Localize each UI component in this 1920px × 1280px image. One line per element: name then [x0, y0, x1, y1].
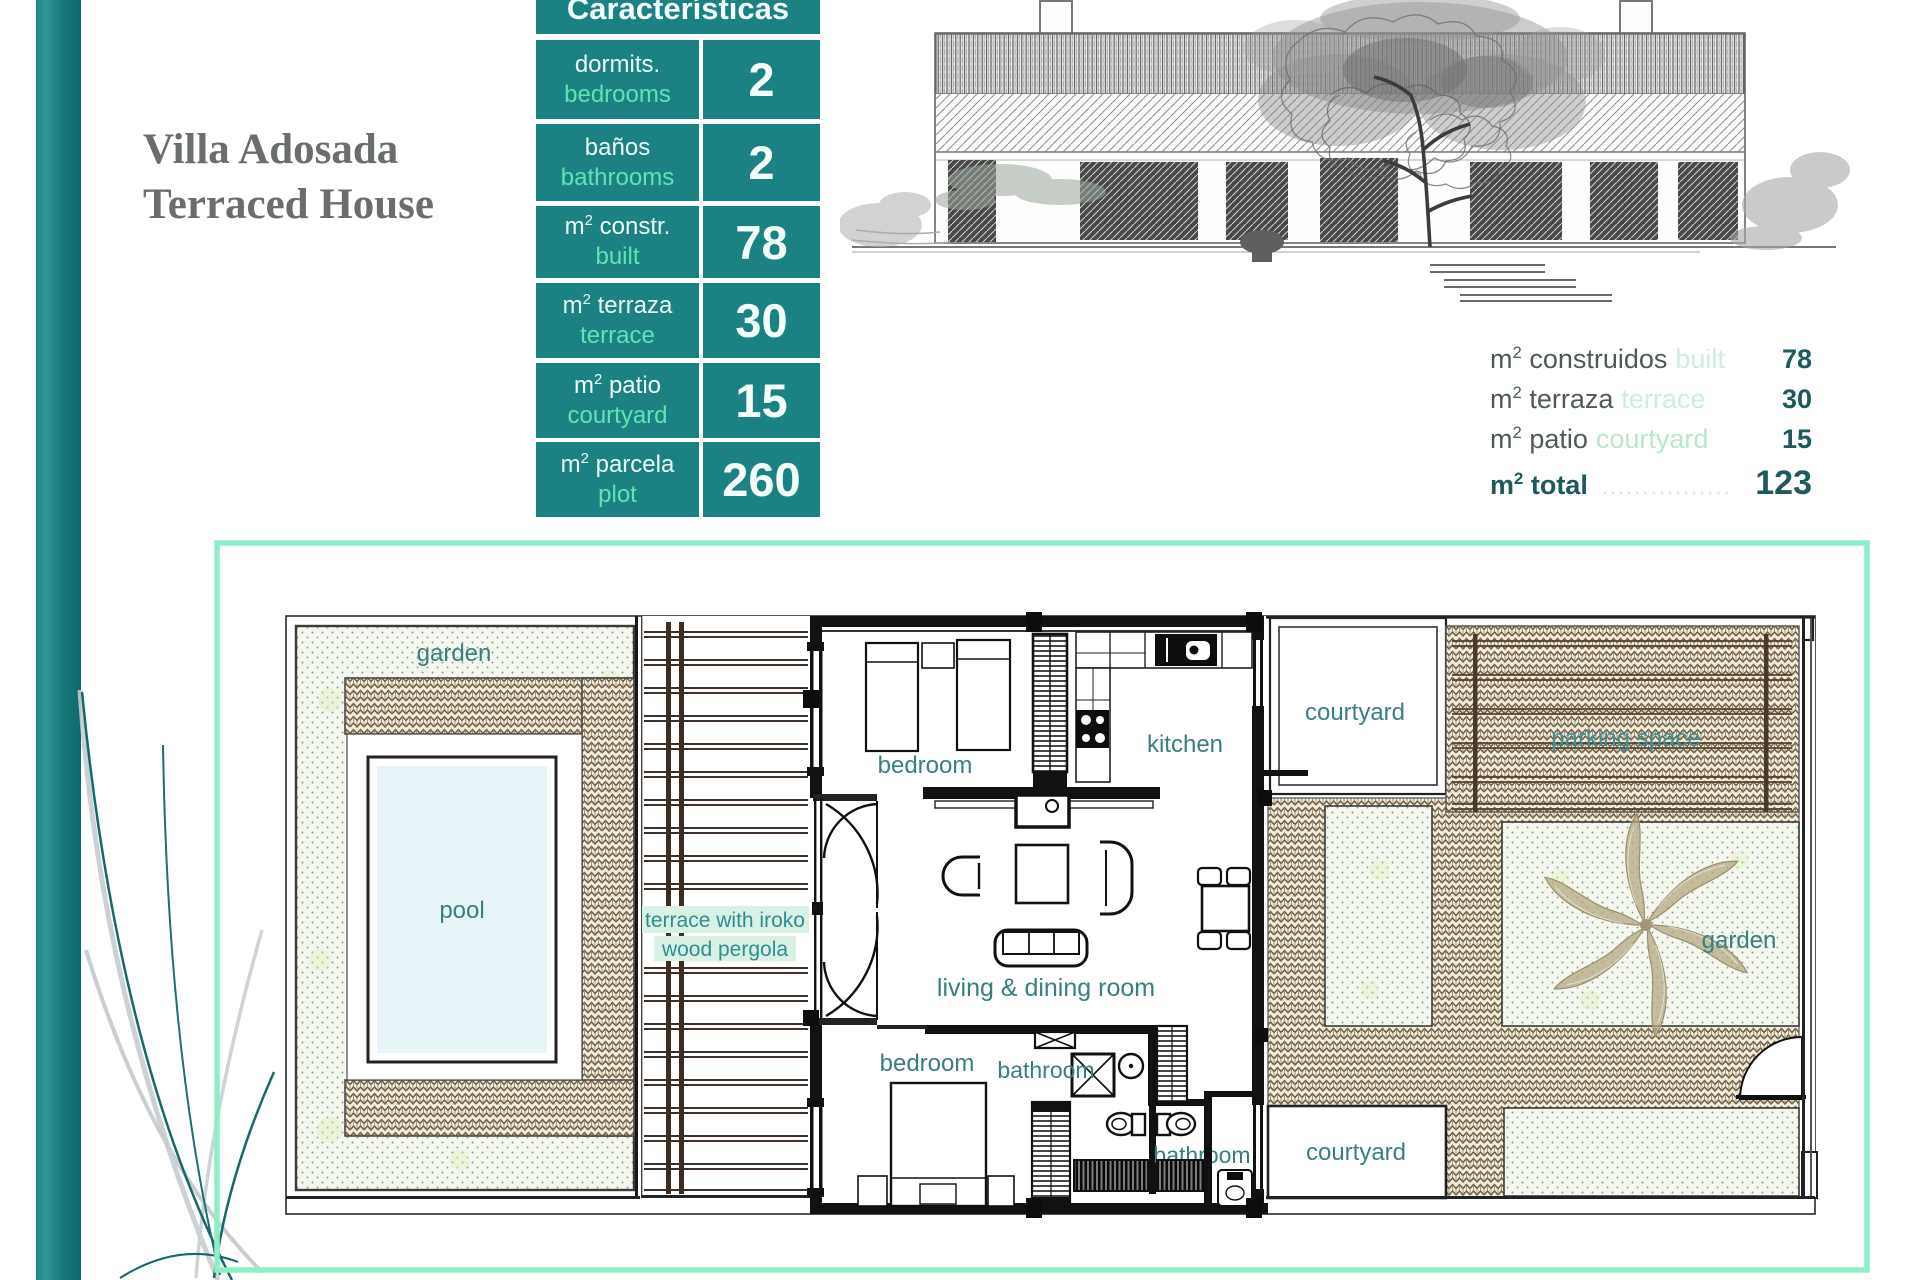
- svg-text:living & dining room: living & dining room: [937, 974, 1155, 1002]
- svg-text:bedroom: bedroom: [878, 752, 973, 779]
- svg-text:bedroom: bedroom: [880, 1050, 975, 1077]
- svg-text:terrace with iroko: terrace with iroko: [645, 909, 805, 932]
- svg-text:garden: garden: [1702, 927, 1777, 954]
- svg-text:kitchen: kitchen: [1147, 731, 1223, 758]
- svg-text:courtyard: courtyard: [1305, 699, 1405, 726]
- svg-text:pool: pool: [439, 897, 484, 924]
- svg-text:parking space: parking space: [1551, 725, 1700, 752]
- svg-text:wood pergola: wood pergola: [661, 938, 788, 961]
- svg-text:bathroom: bathroom: [997, 1057, 1094, 1083]
- svg-text:garden: garden: [417, 640, 492, 667]
- svg-text:courtyard: courtyard: [1306, 1139, 1406, 1166]
